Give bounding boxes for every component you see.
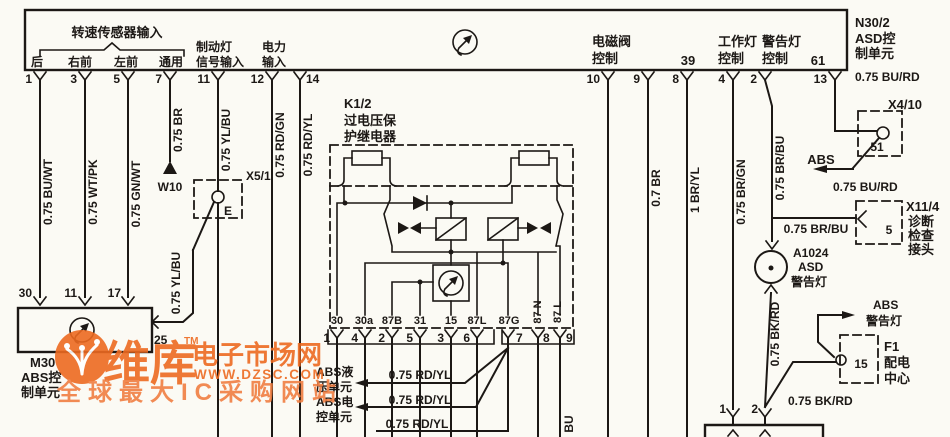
- f1-terminal-icon: [836, 355, 846, 365]
- pin-number-12: 12: [251, 72, 265, 86]
- x11-4-pin-5: 5: [886, 223, 893, 237]
- m30-label-3: 制单元: [21, 385, 60, 400]
- wire-label-bu-rd-lower: 0.75 BU/RD: [833, 180, 898, 194]
- watermark-logo-dot: [64, 343, 70, 349]
- x5-1-name: X5/1: [246, 169, 271, 183]
- relay-fuse-legs: [505, 158, 563, 186]
- pin-number-13: 13: [814, 72, 828, 86]
- x11-4-name: X11/4: [906, 199, 940, 214]
- relay-terminal-30: 30: [331, 315, 343, 327]
- lamp-filament-dot: [769, 266, 774, 271]
- wire-label-fragment: BU: [562, 415, 576, 432]
- wire-label: 0.75 BR/GN: [734, 159, 748, 224]
- x11-4-label-3: 接头: [908, 242, 934, 257]
- bottom-pin-1: 1: [719, 402, 726, 416]
- relay-pin-5: 5: [406, 331, 413, 345]
- wire-label: 0.75 BR: [171, 108, 185, 152]
- m30-name: M30: [30, 355, 55, 370]
- wire-label: 0.75 WT/PK: [86, 159, 100, 225]
- a1024-name: A1024: [793, 246, 829, 260]
- f1-label-2: 配电: [884, 355, 910, 370]
- arrow-to-abs-ecu: [355, 403, 368, 411]
- relay-label-2: 过电压保: [344, 113, 397, 128]
- relay-terminal-87G: 87G: [499, 315, 520, 327]
- relay-fuse-icon: [352, 151, 382, 165]
- wire-label-bk-rd: 0.75 BK/RD: [788, 394, 853, 408]
- bottom-pin-2: 2: [751, 402, 758, 416]
- junction-dot: [501, 261, 506, 266]
- pin-number-8: 8: [672, 72, 679, 86]
- relay-pin-3: 3: [437, 331, 444, 345]
- relay-coil-diagonal: [436, 218, 466, 240]
- n30-unit-label: N30/2 ASD控 制单元 0.75 BU/RD: [855, 15, 920, 84]
- x4-10-connector: X4/10 51 ABS 0.75 BU/RD: [807, 97, 922, 194]
- n30-line3: 制单元: [855, 46, 894, 61]
- relay-k1-2: K1/2 过电压保 护继电器 30 30a: [323, 96, 574, 345]
- pin-number-2: 2: [750, 72, 757, 86]
- wire-label: 0.75 RD/GN: [273, 112, 287, 177]
- relay-pin-9: 9: [566, 331, 573, 345]
- wire-label: 0.75 GN/WT: [129, 160, 143, 227]
- sensor-col-right-front: 右前: [67, 54, 92, 69]
- x11-4-box: [856, 201, 902, 244]
- control-unit-icon: [439, 271, 463, 296]
- wire-label-rd-yl-3: 0.75 RD/YL: [386, 417, 449, 431]
- relay-pin-8: 8: [543, 331, 550, 345]
- solenoid-control-label-1: 电磁阀: [592, 34, 631, 49]
- contact-icon: [540, 222, 551, 234]
- pin-number-5: 5: [113, 72, 120, 86]
- wire-label: 0.75 BR/BU: [773, 136, 787, 201]
- abs-ecu-label-2: 控单元: [316, 409, 352, 424]
- pin-number-1: 1: [25, 72, 32, 86]
- pin-number-3: 3: [70, 72, 77, 86]
- m30-pin-30: 30: [19, 286, 33, 300]
- pin-39-label: 39: [681, 53, 695, 68]
- a1024-label-3: 警告灯: [790, 274, 827, 289]
- relay-coil-diagonal: [488, 218, 518, 240]
- relay-terminal-30a: 30a: [355, 315, 374, 327]
- m30-pin-17: 17: [108, 286, 122, 300]
- f1-label-3: 中心: [884, 371, 910, 386]
- wire-label: 0.75 BU/WT: [41, 158, 55, 225]
- ground-w10: W10: [158, 161, 183, 194]
- brake-signal-label-1: 制动灯: [196, 39, 232, 54]
- control-unit-icon: [453, 30, 477, 55]
- sensor-col-left-front: 左前: [113, 54, 138, 69]
- warnlight-control-label-1: 警告灯: [762, 34, 801, 49]
- relay-fuse-legs: [338, 158, 396, 186]
- pin-number-11: 11: [197, 72, 210, 86]
- m30-label-2: ABS控: [21, 370, 61, 385]
- a1024-warning-lamp: A1024 ASD 警告灯: [755, 241, 829, 293]
- power-input-label-1: 电力: [262, 39, 286, 54]
- relay-terminal-87B: 87B: [382, 315, 402, 327]
- a1024-label-2: ASD: [798, 260, 824, 274]
- f1-abs-label-2: 警告灯: [865, 313, 902, 328]
- relay-fuse-icon: [519, 151, 549, 165]
- wire-label: 0.75 YL/BU: [169, 252, 183, 314]
- abs-destination-label: ABS: [807, 152, 835, 167]
- pin-number-14: 14: [306, 72, 320, 86]
- x11-4-label-1: 诊断: [908, 214, 934, 229]
- f1-pin-15: 15: [854, 357, 868, 371]
- top-connector-bar: 转速传感器输入 后 右前 左前 通用 制动灯 信号输入 电力 输入 电磁阀 控制…: [25, 10, 847, 70]
- power-input-label-2: 输入: [262, 54, 286, 69]
- relay-pin-6: 6: [463, 331, 470, 345]
- watermark-logo-dot: [79, 345, 85, 351]
- relay-pin-7: 7: [516, 331, 523, 345]
- wire-label-br-bu: 0.75 BR/BU: [784, 222, 849, 236]
- diode-icon: [413, 196, 427, 210]
- wiring-diagram-page: 转速传感器输入 后 右前 左前 通用 制动灯 信号输入 电力 输入 电磁阀 控制…: [0, 0, 950, 437]
- wire-label-rd-yl-2: 0.75 RD/YL: [389, 393, 452, 407]
- contact-icon: [410, 222, 421, 234]
- wire-label: 0.75 BK/RD: [768, 301, 782, 366]
- contact-icon: [398, 222, 409, 234]
- relay-terminal-87L2: 87 L: [552, 301, 564, 323]
- relay-terminal-87N: 87 N: [532, 300, 544, 323]
- wire-label-bu-rd-top: 0.75 BU/RD: [855, 70, 920, 84]
- junction-dot: [449, 201, 454, 206]
- junction-dot: [449, 250, 454, 255]
- relay-terminal-87L: 87L: [468, 315, 487, 327]
- ground-icon: [163, 161, 177, 174]
- x4-10-name: X4/10: [888, 97, 922, 112]
- watermark-suffix: 电子市场网: [192, 340, 322, 370]
- wire-label: 1 BR/YL: [688, 167, 702, 213]
- worklight-control-label-1: 工作灯: [718, 34, 757, 49]
- wiring-diagram: 转速传感器输入 后 右前 左前 通用 制动灯 信号输入 电力 输入 电磁阀 控制…: [0, 0, 950, 437]
- relay-pin-1: 1: [323, 331, 330, 345]
- worklight-control-label-2: 控制: [718, 51, 744, 66]
- x4-10-pin-51: 51: [870, 140, 884, 154]
- relay-pin-2: 2: [378, 331, 385, 345]
- wire-label-rd-yl-1: 0.75 RD/YL: [389, 368, 452, 382]
- pin-number-9: 9: [633, 72, 640, 86]
- arrow-to-abs-hydraulic: [355, 379, 368, 387]
- m30-pin-forks: [34, 297, 158, 328]
- warnlight-control-label-2: 控制: [762, 51, 788, 66]
- sensor-col-common: 通用: [159, 54, 183, 69]
- relay-label-3: 护继电器: [344, 129, 397, 144]
- watermark-logo-dot: [94, 339, 100, 345]
- wire-label: 0.7 BR: [649, 169, 663, 207]
- n30-line2: ASD控: [855, 31, 895, 46]
- junction-dot: [418, 280, 423, 285]
- f1-name: F1: [884, 339, 899, 354]
- m30-pin-11: 11: [64, 286, 77, 300]
- sensor-col-rear: 后: [31, 54, 43, 69]
- x5-1-terminal-icon: [212, 191, 224, 203]
- arrow-to-abs-warnlamp: [842, 311, 855, 319]
- n30-line1: N30/2: [855, 15, 890, 30]
- x4-10-terminal-icon: [877, 127, 889, 139]
- brake-signal-label-2: 信号输入: [196, 54, 244, 69]
- sensor-group-title: 转速传感器输入: [71, 25, 162, 40]
- x11-4-fork: [858, 211, 866, 227]
- wire-label: 0.75 YL/BU: [219, 109, 233, 171]
- junction-dot: [343, 201, 348, 206]
- pin-61-label: 61: [811, 53, 825, 68]
- relay-terminal-15: 15: [445, 315, 457, 327]
- x5-1-contact-label: E: [224, 204, 232, 218]
- watermark-tagline: 全球最大IC采购网站: [56, 378, 343, 406]
- f1-abs-label-1: ABS: [873, 298, 898, 312]
- relay-pin-4: 4: [351, 331, 358, 345]
- pin-number-7: 7: [155, 72, 162, 86]
- solenoid-control-label-2: 控制: [592, 51, 618, 66]
- top-pin-numbers: 1 3 5 7 11 12 14 10 9 8 4 2 13: [25, 72, 827, 86]
- ground-label: W10: [158, 180, 183, 194]
- contact-icon: [527, 222, 538, 234]
- relay-name: K1/2: [344, 96, 371, 111]
- pin-number-4: 4: [718, 72, 725, 86]
- watermark: 维库 TM 电子市场网 WWW.DZSC.COM 全球最大IC采购网站: [55, 330, 343, 406]
- relay-terminal-31: 31: [414, 315, 426, 327]
- x5-1-connector: X5/1 E: [194, 169, 271, 218]
- pin-number-10: 10: [587, 72, 601, 86]
- wire-label: 0.75 RD/YL: [301, 114, 315, 177]
- x11-4-label-2: 检查: [908, 228, 935, 243]
